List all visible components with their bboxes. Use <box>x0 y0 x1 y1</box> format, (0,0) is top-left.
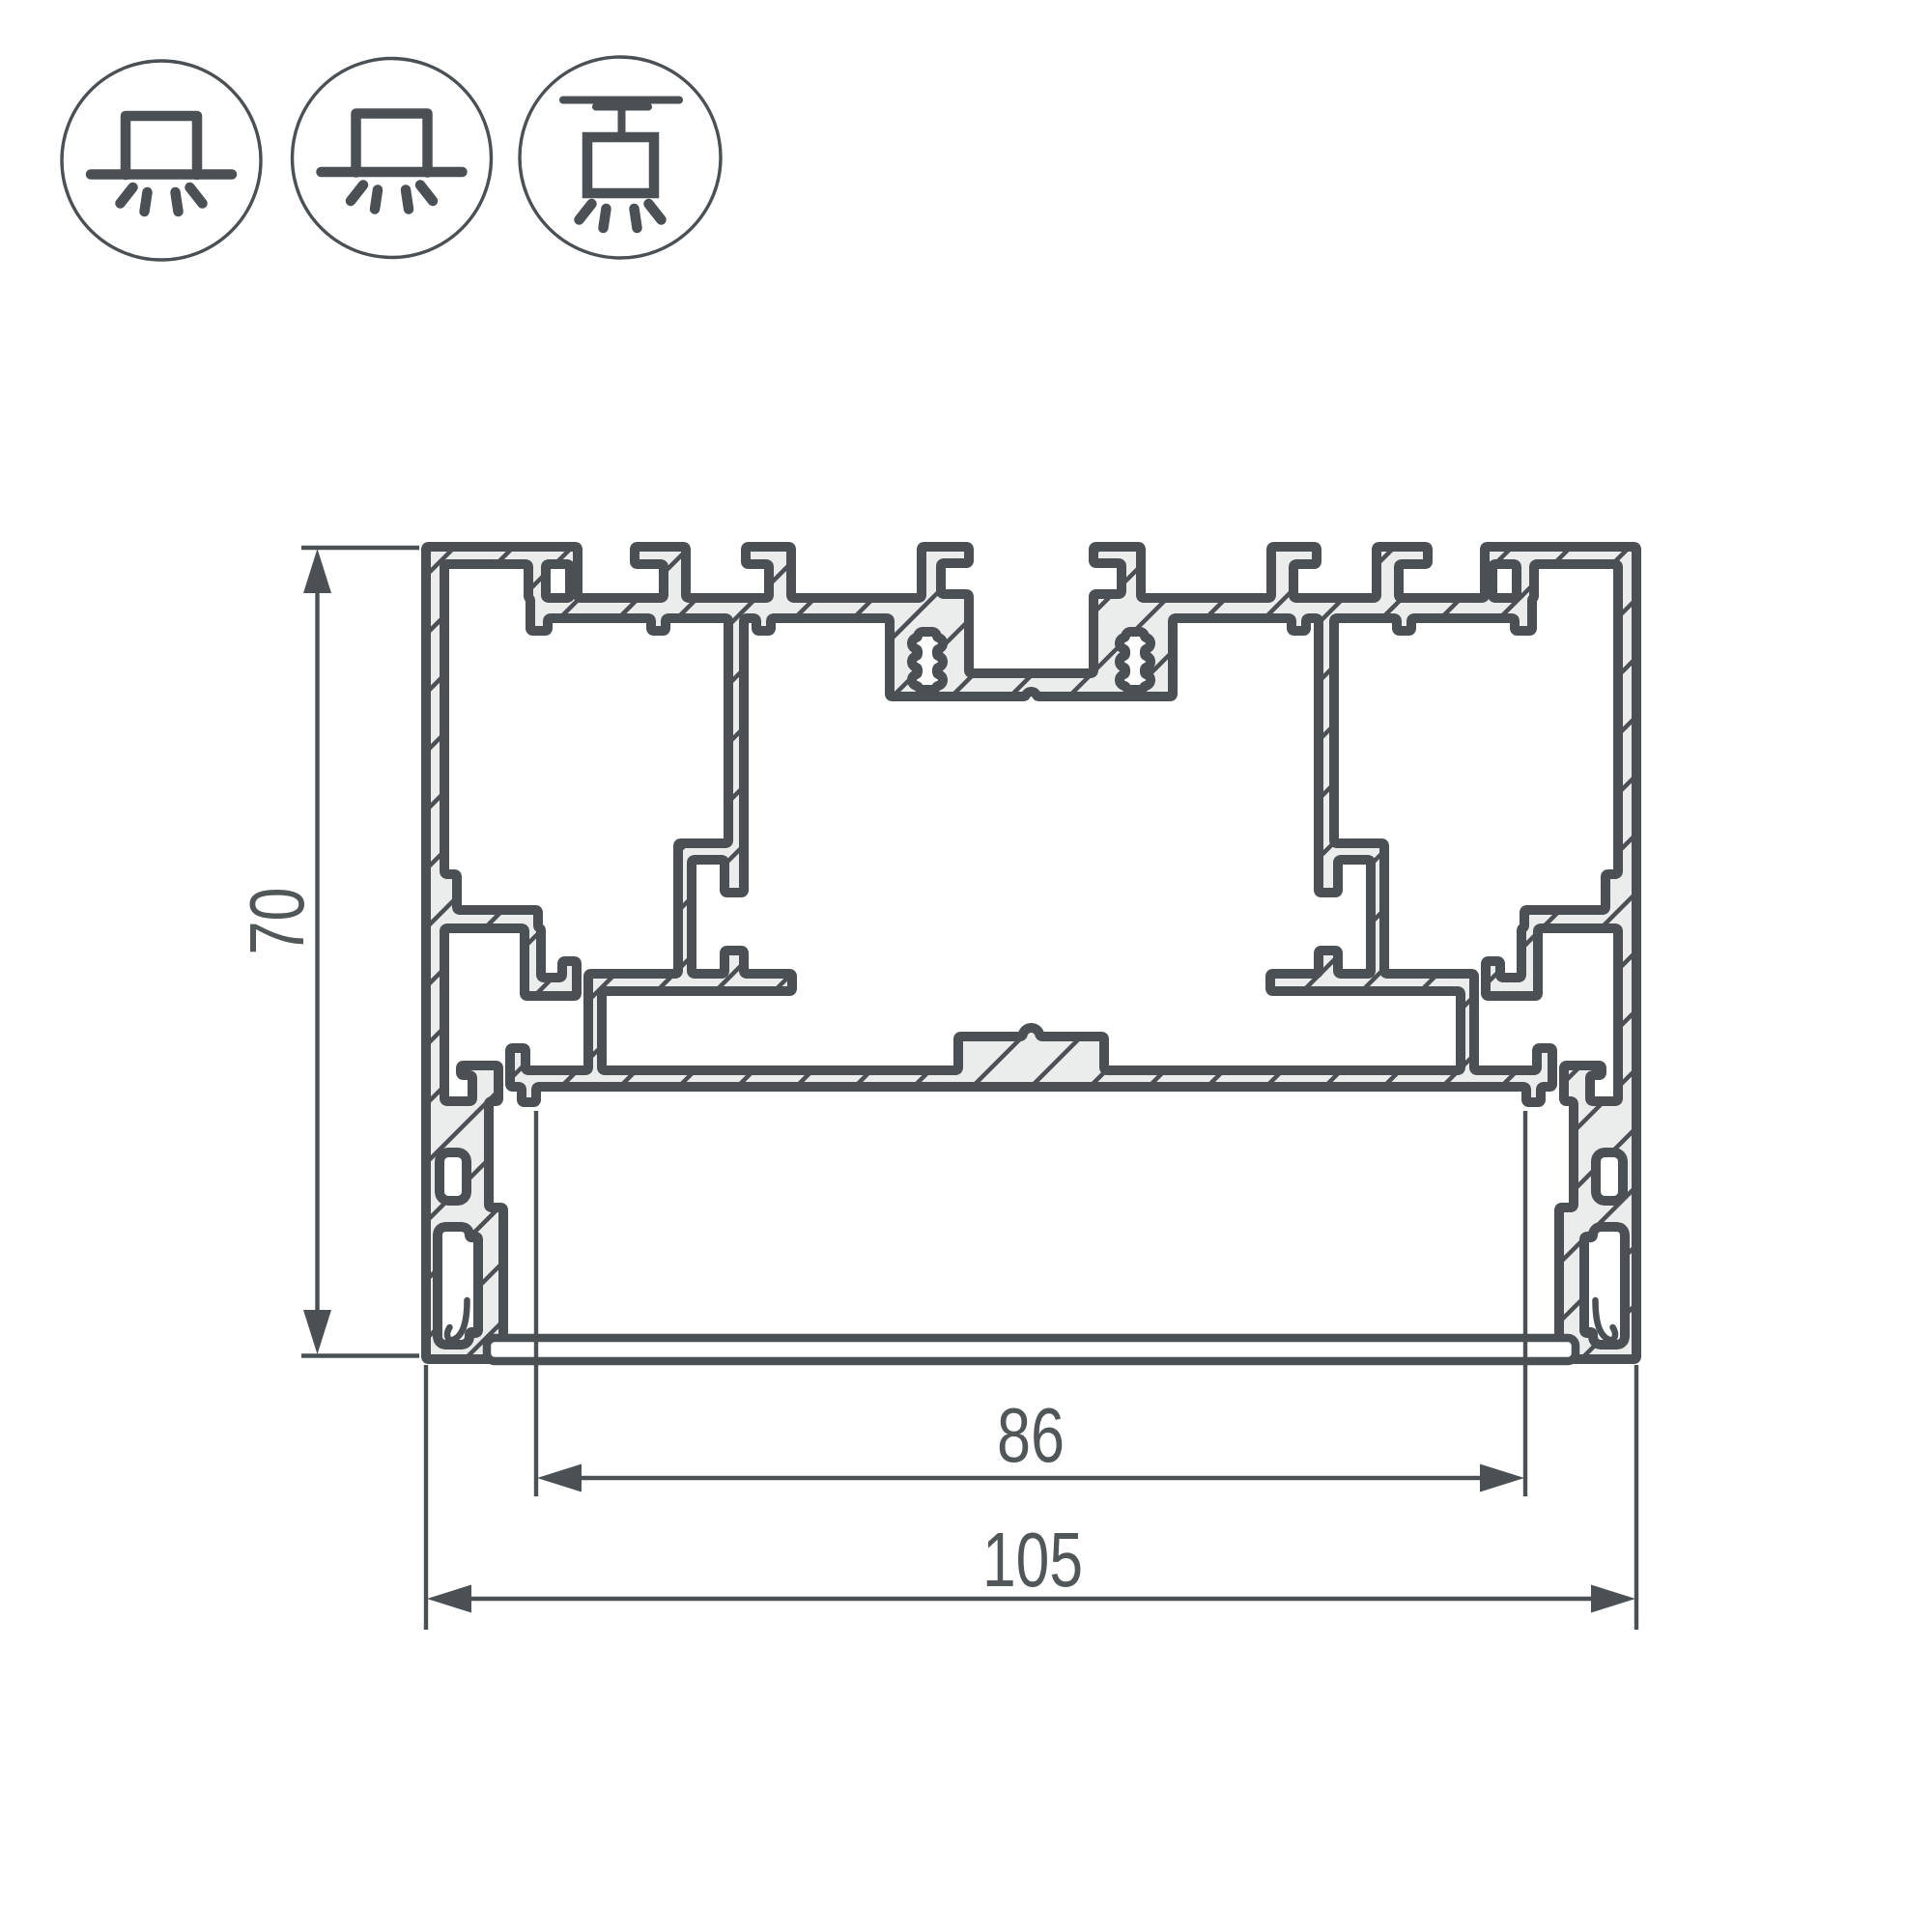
svg-text:86: 86 <box>997 1392 1065 1478</box>
svg-text:105: 105 <box>982 1517 1083 1603</box>
svg-text:70: 70 <box>234 888 320 955</box>
